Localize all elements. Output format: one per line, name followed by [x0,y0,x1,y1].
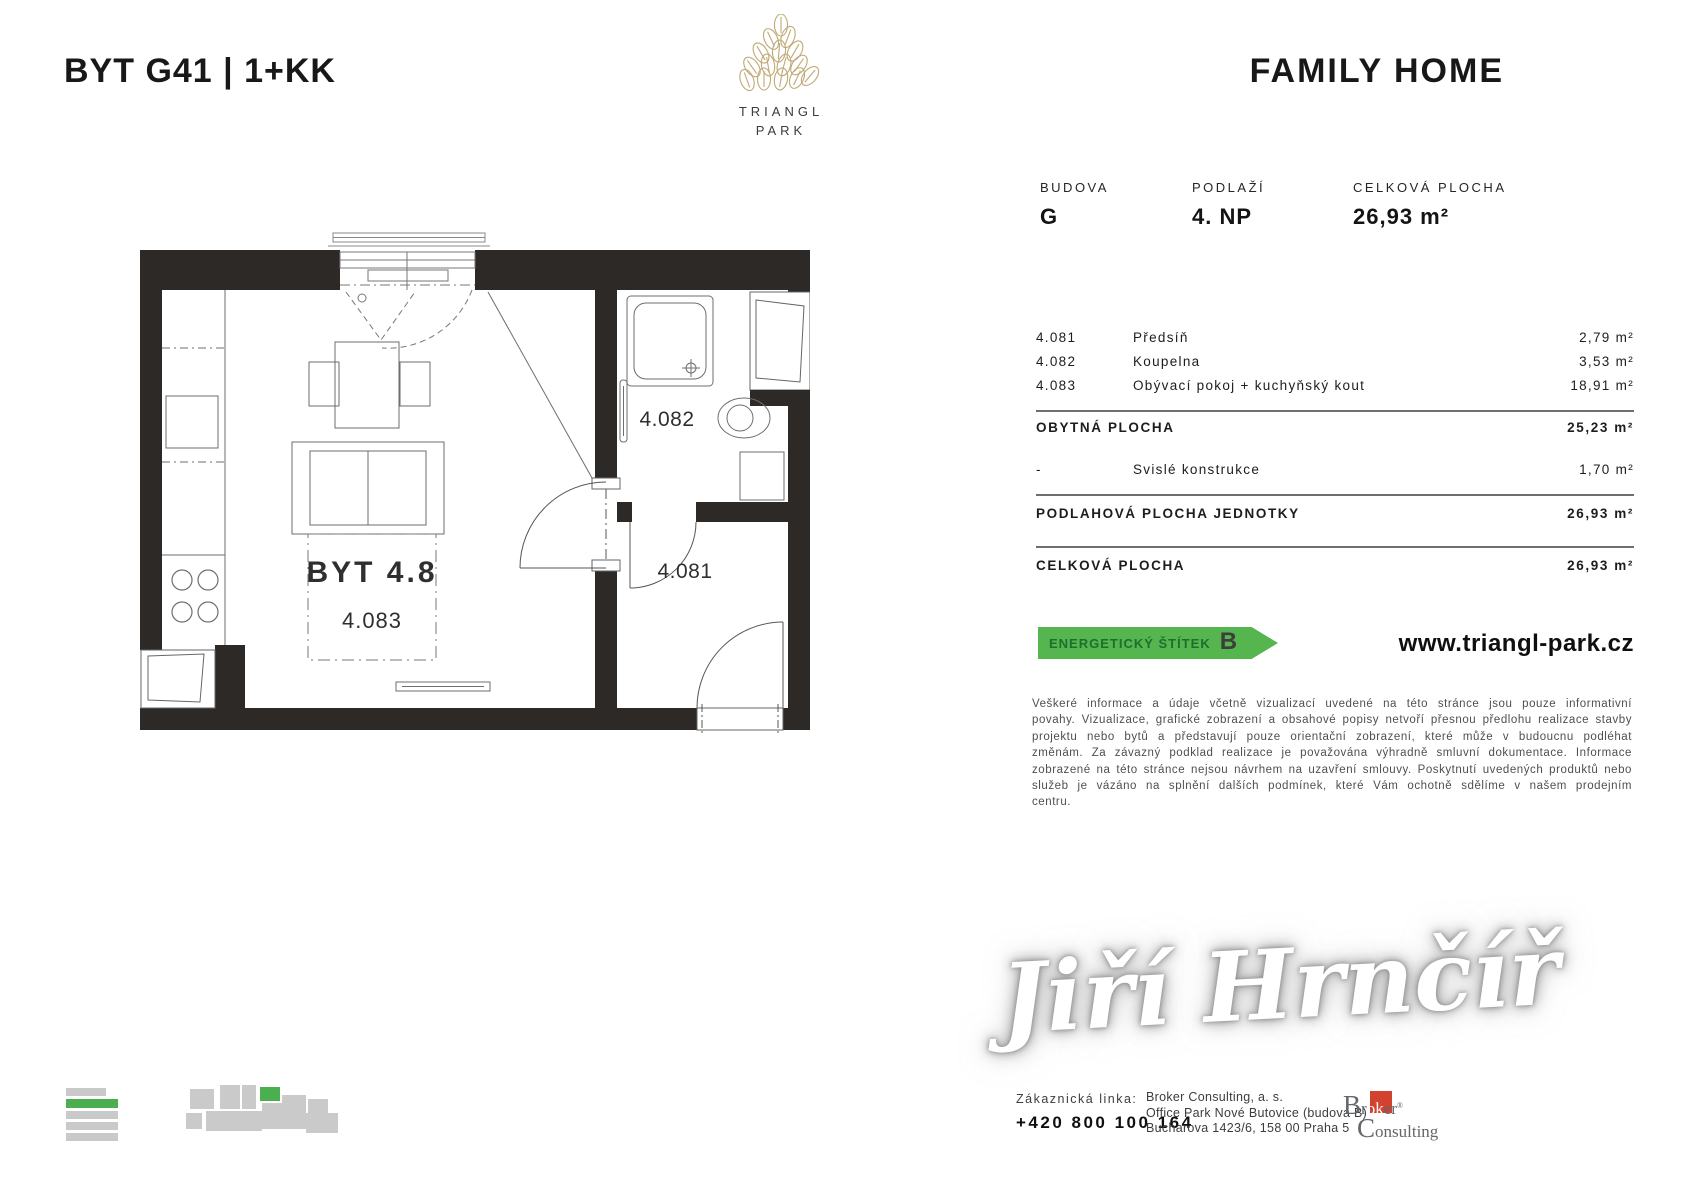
living-hall-door-swing [520,482,606,568]
room-area: 18,91 m² [1570,378,1634,393]
washing-machine-icon [740,452,784,500]
svisle-prefix: - [1036,462,1133,477]
summary-budova: BUDOVA G [1040,180,1109,230]
shower [627,296,713,386]
energy-grade: B [1220,628,1237,656]
kitchen-counter [162,290,225,645]
leaf-triangle-icon [738,14,824,96]
total-row-podlahova: PODLAHOVÁ PLOCHA JEDNOTKY 26,93 m² [1036,506,1634,521]
summary-plocha: CELKOVÁ PLOCHA 26,93 m² [1353,180,1507,230]
total-value: 26,93 m² [1567,506,1634,521]
site-plan-diagram [186,1083,341,1146]
brand-title: FAMILY HOME [1250,52,1504,91]
table-row: 4.081 Předsíň 2,79 m² [1036,330,1634,345]
total-label: OBYTNÁ PLOCHA [1036,420,1567,435]
company-address-line1: Office Park Nové Butovice (budova B) [1146,1106,1367,1122]
broker-signature: Jiří Hrnčíř [977,912,1582,1056]
floor-bar-highlighted [66,1099,118,1108]
logo-line2: PARK [738,122,824,139]
toilet-icon [718,398,770,438]
unit-label: BYT 4.8 [306,556,437,589]
room-area: 3,53 m² [1579,354,1634,369]
towel-radiator [620,380,627,442]
svisle-value: 1,70 m² [1579,462,1634,477]
broker-logo-line2: Consulting [1357,1115,1438,1142]
registered-mark: ® [1397,1101,1403,1110]
podlazi-value: 4. NP [1192,204,1265,230]
room-name: Předsíň [1133,330,1579,345]
total-label: CELKOVÁ PLOCHA [1036,558,1567,573]
total-label: PODLAHOVÁ PLOCHA JEDNOTKY [1036,506,1567,521]
svisle-label: Svislé konstrukce [1133,462,1579,477]
living-room-label: 4.083 [342,608,402,633]
table-row: 4.082 Koupelna 3,53 m² [1036,354,1634,369]
total-value: 26,93 m² [1567,558,1634,573]
datasheet-page: BYT G41 | 1+KK FAMILY HOME TRIA [0,0,1696,1200]
floor-bar [66,1088,106,1096]
unit-label-box [308,534,436,660]
floor-bar [66,1111,118,1119]
total-row-obytna: OBYTNÁ PLOCHA 25,23 m² [1036,420,1634,435]
room-area: 2,79 m² [1579,330,1634,345]
energy-badge: ENERGETICKÝ ŠTÍTEK B [1038,627,1278,659]
company-address: Broker Consulting, a. s. Office Park Nov… [1146,1090,1367,1137]
plocha-label: CELKOVÁ PLOCHA [1353,180,1507,195]
sofa-bed [292,442,444,534]
triangl-park-logo: TRIANGL PARK [738,14,824,139]
room-name: Obývací pokoj + kuchyňský kout [1133,378,1570,393]
floor-bar [66,1133,118,1141]
hallway-label: 4.081 [657,560,712,583]
company-name: Broker Consulting, a. s. [1146,1090,1367,1106]
summary-columns: BUDOVA G PODLAŽÍ 4. NP CELKOVÁ PLOCHA 26… [1040,180,1600,240]
plocha-value: 26,93 m² [1353,204,1507,230]
company-address-line2: Bucharova 1423/6, 158 00 Praha 5 [1146,1121,1367,1137]
kitchen-window-niche [141,650,215,708]
site-plan-highlight [260,1087,280,1101]
wardrobe [488,292,592,478]
balcony-door [340,252,475,348]
budova-value: G [1040,204,1109,230]
balcony-railing [328,233,490,246]
floor-plan: BYT 4.8 4.083 4.082 4.081 [140,230,810,740]
total-value: 25,23 m² [1567,420,1634,435]
stove-icon [172,570,218,622]
page-title: BYT G41 | 1+KK [64,52,336,91]
dining-table [309,342,430,428]
room-code: 4.081 [1036,330,1133,345]
walls [140,250,810,730]
room-code: 4.082 [1036,354,1133,369]
broker-consulting-logo: Broker® Consulting [1343,1092,1438,1142]
building-floors-diagram [66,1088,118,1144]
room-code: 4.083 [1036,378,1133,393]
total-row-celkova: CELKOVÁ PLOCHA 26,93 m² [1036,558,1634,573]
entry-door [697,622,783,734]
doormat [396,682,490,691]
summary-podlazi: PODLAŽÍ 4. NP [1192,180,1265,230]
podlazi-label: PODLAŽÍ [1192,180,1265,195]
broker-part3: onsulting [1375,1122,1438,1141]
table-row: 4.083 Obývací pokoj + kuchyňský kout 18,… [1036,378,1634,393]
divider [1036,546,1634,548]
disclaimer-text: Veškeré informace a údaje včetně vizuali… [1032,696,1632,811]
website-link[interactable]: www.triangl-park.cz [1399,630,1634,658]
energy-label: ENERGETICKÝ ŠTÍTEK [1049,636,1211,651]
room-name: Koupelna [1133,354,1579,369]
bathroom-label: 4.082 [639,408,694,431]
logo-line1: TRIANGL [738,103,824,120]
bathroom-window-niche [750,292,810,406]
floor-bar [66,1122,118,1130]
broker-cap-c: C [1357,1113,1375,1143]
budova-label: BUDOVA [1040,180,1109,195]
divider [1036,410,1634,412]
total-row-svisle: - Svislé konstrukce 1,70 m² [1036,462,1634,477]
divider [1036,494,1634,496]
